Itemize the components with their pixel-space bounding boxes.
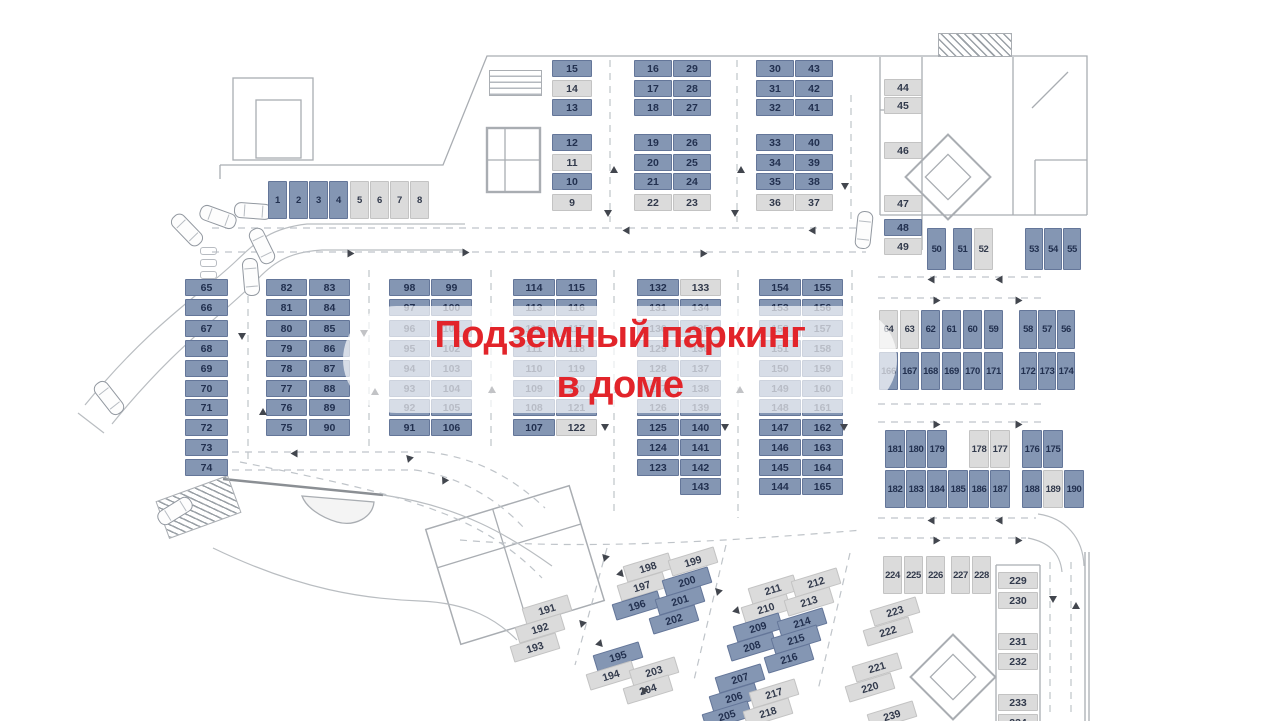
parking-stall-98[interactable]: 98: [389, 279, 430, 296]
parking-stall-178: 178: [969, 430, 989, 468]
parking-stall-115[interactable]: 115: [556, 279, 597, 296]
parking-stall-43[interactable]: 43: [795, 60, 833, 77]
parking-stall-77[interactable]: 77: [266, 380, 307, 397]
parking-stall-11: 11: [552, 154, 592, 171]
parking-stall-165[interactable]: 165: [802, 478, 843, 495]
parking-stall-176[interactable]: 176: [1022, 430, 1042, 468]
parking-stall-169[interactable]: 169: [942, 352, 961, 390]
parking-stall-58[interactable]: 58: [1019, 310, 1037, 349]
parking-stall-21[interactable]: 21: [634, 173, 672, 190]
parking-stall-6: 6: [370, 181, 389, 219]
parking-stall-99[interactable]: 99: [431, 279, 472, 296]
parking-stall-73[interactable]: 73: [185, 439, 228, 456]
direction-arrow-icon: [996, 276, 1003, 284]
parking-stall-62[interactable]: 62: [921, 310, 940, 349]
direction-arrow-icon: [259, 408, 267, 415]
parking-stall-47: 47: [884, 195, 922, 212]
parking-stall-38[interactable]: 38: [795, 173, 833, 190]
parking-stall-230: 230: [998, 592, 1038, 609]
parking-stall-231: 231: [998, 633, 1038, 650]
parking-stall-75[interactable]: 75: [266, 419, 307, 436]
parking-stall-55[interactable]: 55: [1063, 228, 1081, 270]
direction-arrow-icon: [238, 333, 246, 340]
parking-stall-10[interactable]: 10: [552, 173, 592, 190]
parking-stall-8: 8: [410, 181, 429, 219]
parking-stall-154[interactable]: 154: [759, 279, 801, 296]
parking-stall-114[interactable]: 114: [513, 279, 555, 296]
direction-arrow-icon: [809, 227, 816, 235]
car-icon: [241, 257, 260, 296]
parking-stall-227: 227: [951, 556, 970, 594]
parking-stall-142[interactable]: 142: [680, 459, 721, 476]
parking-stall-162[interactable]: 162: [802, 419, 843, 436]
parking-stall-46: 46: [884, 142, 922, 159]
parking-stall-164[interactable]: 164: [802, 459, 843, 476]
parking-stall-2[interactable]: 2: [289, 181, 308, 219]
parking-stall-188[interactable]: 188: [1022, 470, 1042, 508]
parking-stall-52: 52: [974, 228, 993, 270]
parking-stall-60[interactable]: 60: [963, 310, 982, 349]
direction-arrow-icon: [463, 249, 470, 257]
parking-stall-224: 224: [883, 556, 902, 594]
parking-stall-50[interactable]: 50: [927, 228, 946, 270]
direction-arrow-icon: [1016, 297, 1023, 305]
parking-stall-80[interactable]: 80: [266, 320, 307, 337]
parking-stall-167[interactable]: 167: [900, 352, 919, 390]
parking-stall-34[interactable]: 34: [756, 154, 794, 171]
parking-stall-14: 14: [552, 80, 592, 97]
parking-stall-9: 9: [552, 194, 592, 211]
page-title-line1: Подземный паркинг: [343, 314, 897, 357]
parking-stall-53[interactable]: 53: [1025, 228, 1043, 270]
car-icon: [233, 202, 272, 221]
parking-stall-67[interactable]: 67: [185, 320, 228, 337]
parking-stall-61[interactable]: 61: [942, 310, 961, 349]
parking-stall-68[interactable]: 68: [185, 340, 228, 357]
parking-stall-1[interactable]: 1: [268, 181, 287, 219]
parking-stall-170[interactable]: 170: [963, 352, 982, 390]
parking-stall-26[interactable]: 26: [673, 134, 711, 151]
parking-stall-72[interactable]: 72: [185, 419, 228, 436]
parking-stall-124[interactable]: 124: [637, 439, 679, 456]
parking-stall-49: 49: [884, 238, 922, 255]
road-marking: [200, 259, 217, 267]
parking-stall-31[interactable]: 31: [756, 80, 794, 97]
parking-stall-175[interactable]: 175: [1043, 430, 1063, 468]
parking-stall-90[interactable]: 90: [309, 419, 350, 436]
parking-stall-65[interactable]: 65: [185, 279, 228, 296]
parking-stall-79[interactable]: 79: [266, 340, 307, 357]
parking-stall-173[interactable]: 173: [1038, 352, 1056, 390]
parking-stall-144[interactable]: 144: [759, 478, 801, 495]
parking-stall-232: 232: [998, 653, 1038, 670]
parking-stall-146[interactable]: 146: [759, 439, 801, 456]
parking-stall-41[interactable]: 41: [795, 99, 833, 116]
parking-stall-155[interactable]: 155: [802, 279, 843, 296]
direction-arrow-icon: [841, 183, 849, 190]
parking-stall-56[interactable]: 56: [1057, 310, 1075, 349]
parking-stall-184[interactable]: 184: [927, 470, 947, 508]
direction-arrow-icon: [1049, 596, 1057, 603]
parking-stall-122: 122: [556, 419, 597, 436]
direction-arrow-icon: [737, 166, 745, 173]
parking-stall-69[interactable]: 69: [185, 360, 228, 377]
parking-stall-186[interactable]: 186: [969, 470, 989, 508]
parking-stall-22: 22: [634, 194, 672, 211]
parking-stall-40[interactable]: 40: [795, 134, 833, 151]
parking-stall-42[interactable]: 42: [795, 80, 833, 97]
parking-stall-25[interactable]: 25: [673, 154, 711, 171]
parking-stall-57[interactable]: 57: [1038, 310, 1056, 349]
parking-stall-234: 234: [998, 714, 1038, 721]
parking-stall-44: 44: [884, 79, 922, 96]
direction-arrow-icon: [928, 517, 935, 525]
direction-arrow-icon: [701, 250, 708, 258]
parking-stall-13[interactable]: 13: [552, 99, 592, 116]
parking-stall-63: 63: [900, 310, 919, 349]
ramp-hatch: [938, 33, 1012, 57]
parking-stall-16[interactable]: 16: [634, 60, 672, 77]
parking-stall-181[interactable]: 181: [885, 430, 905, 468]
parking-stall-225: 225: [904, 556, 923, 594]
direction-arrow-icon: [731, 210, 739, 217]
parking-stall-27[interactable]: 27: [673, 99, 711, 116]
parking-stall-74[interactable]: 74: [185, 459, 228, 476]
parking-stall-78[interactable]: 78: [266, 360, 307, 377]
parking-stall-180[interactable]: 180: [906, 430, 926, 468]
parking-stall-45: 45: [884, 97, 922, 114]
parking-stall-174[interactable]: 174: [1057, 352, 1075, 390]
parking-stall-107[interactable]: 107: [513, 419, 555, 436]
direction-arrow-icon: [348, 250, 355, 258]
parking-stall-17[interactable]: 17: [634, 80, 672, 97]
parking-stall-229: 229: [998, 572, 1038, 589]
parking-stall-30[interactable]: 30: [756, 60, 794, 77]
direction-arrow-icon: [928, 276, 935, 284]
parking-stall-23: 23: [673, 194, 711, 211]
direction-arrow-icon: [1072, 602, 1080, 609]
direction-arrow-icon: [610, 166, 618, 173]
parking-stall-19[interactable]: 19: [634, 134, 672, 151]
parking-stall-59[interactable]: 59: [984, 310, 1003, 349]
direction-arrow-icon: [601, 424, 609, 431]
parking-stall-28[interactable]: 28: [673, 80, 711, 97]
direction-arrow-icon: [721, 424, 729, 431]
direction-arrow-icon: [1016, 421, 1023, 429]
direction-arrow-icon: [291, 450, 298, 458]
parking-stall-76[interactable]: 76: [266, 399, 307, 416]
parking-stall-82[interactable]: 82: [266, 279, 307, 296]
parking-stall-147[interactable]: 147: [759, 419, 801, 436]
parking-stall-51[interactable]: 51: [953, 228, 972, 270]
parking-stall-35[interactable]: 35: [756, 173, 794, 190]
underground-parking-floorplan: 1514131211109161718192021222928272625242…: [0, 0, 1267, 721]
parking-stall-4[interactable]: 4: [329, 181, 348, 219]
parking-stall-190[interactable]: 190: [1064, 470, 1084, 508]
parking-stall-5: 5: [350, 181, 369, 219]
parking-stall-228: 228: [972, 556, 991, 594]
parking-stall-168[interactable]: 168: [921, 352, 940, 390]
parking-stall-7: 7: [390, 181, 409, 219]
parking-stall-15[interactable]: 15: [552, 60, 592, 77]
parking-stall-12[interactable]: 12: [552, 134, 592, 151]
stairs-icon: [489, 70, 542, 96]
parking-stall-189: 189: [1043, 470, 1063, 508]
parking-stall-54[interactable]: 54: [1044, 228, 1062, 270]
parking-stall-185[interactable]: 185: [948, 470, 968, 508]
parking-stall-29[interactable]: 29: [673, 60, 711, 77]
parking-stall-233: 233: [998, 694, 1038, 711]
road-marking: [200, 247, 217, 255]
direction-arrow-icon: [604, 210, 612, 217]
parking-stall-37: 37: [795, 194, 833, 211]
parking-stall-177: 177: [990, 430, 1010, 468]
parking-stall-66[interactable]: 66: [185, 299, 228, 316]
parking-stall-132[interactable]: 132: [637, 279, 679, 296]
parking-stall-20[interactable]: 20: [634, 154, 672, 171]
direction-arrow-icon: [623, 227, 630, 235]
parking-stall-141[interactable]: 141: [680, 439, 721, 456]
parking-stall-171[interactable]: 171: [984, 352, 1003, 390]
direction-arrow-icon: [840, 424, 848, 431]
parking-stall-179[interactable]: 179: [927, 430, 947, 468]
page-title-line2: в доме: [343, 364, 897, 407]
direction-arrow-icon: [934, 297, 941, 305]
parking-stall-24[interactable]: 24: [673, 173, 711, 190]
parking-stall-71[interactable]: 71: [185, 399, 228, 416]
parking-stall-145[interactable]: 145: [759, 459, 801, 476]
parking-stall-36: 36: [756, 194, 794, 211]
parking-stall-18[interactable]: 18: [634, 99, 672, 116]
parking-stall-125[interactable]: 125: [637, 419, 679, 436]
parking-stall-123[interactable]: 123: [637, 459, 679, 476]
parking-stall-70[interactable]: 70: [185, 380, 228, 397]
parking-stall-83[interactable]: 83: [309, 279, 350, 296]
parking-stall-33[interactable]: 33: [756, 134, 794, 151]
parking-stall-226: 226: [926, 556, 945, 594]
parking-stall-140[interactable]: 140: [680, 419, 721, 436]
parking-stall-187[interactable]: 187: [990, 470, 1010, 508]
parking-stall-91[interactable]: 91: [389, 419, 430, 436]
parking-stall-143[interactable]: 143: [680, 478, 721, 495]
parking-stall-133: 133: [680, 279, 721, 296]
road-marking: [200, 271, 217, 279]
parking-stall-182[interactable]: 182: [885, 470, 905, 508]
direction-arrow-icon: [996, 517, 1003, 525]
parking-stall-32[interactable]: 32: [756, 99, 794, 116]
parking-stall-3[interactable]: 3: [309, 181, 328, 219]
parking-stall-48[interactable]: 48: [884, 219, 922, 236]
parking-stall-163[interactable]: 163: [802, 439, 843, 456]
direction-arrow-icon: [1016, 537, 1023, 545]
direction-arrow-icon: [934, 421, 941, 429]
parking-stall-106[interactable]: 106: [431, 419, 472, 436]
parking-stall-183[interactable]: 183: [906, 470, 926, 508]
parking-stall-39[interactable]: 39: [795, 154, 833, 171]
parking-stall-81[interactable]: 81: [266, 299, 307, 316]
direction-arrow-icon: [934, 537, 941, 545]
parking-stall-172[interactable]: 172: [1019, 352, 1037, 390]
